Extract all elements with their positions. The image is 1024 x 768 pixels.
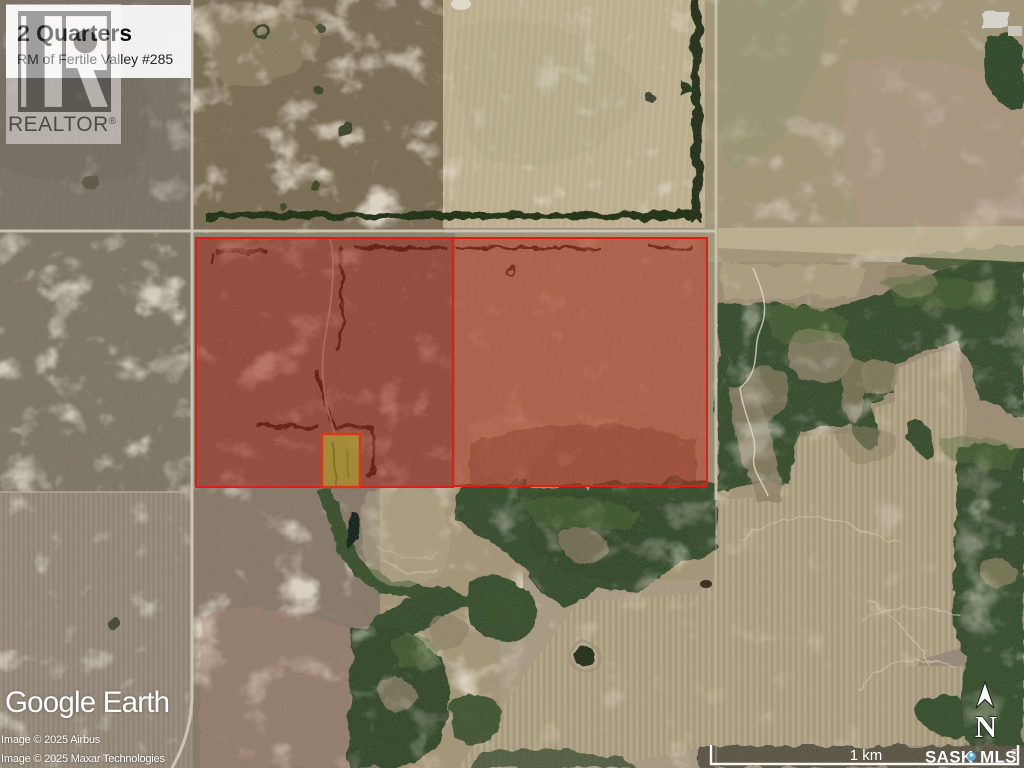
svg-text:®: ®: [1011, 748, 1019, 759]
svg-text:N: N: [975, 709, 997, 744]
svg-text:SASK: SASK: [925, 748, 974, 767]
svg-text:1 km: 1 km: [850, 747, 883, 764]
